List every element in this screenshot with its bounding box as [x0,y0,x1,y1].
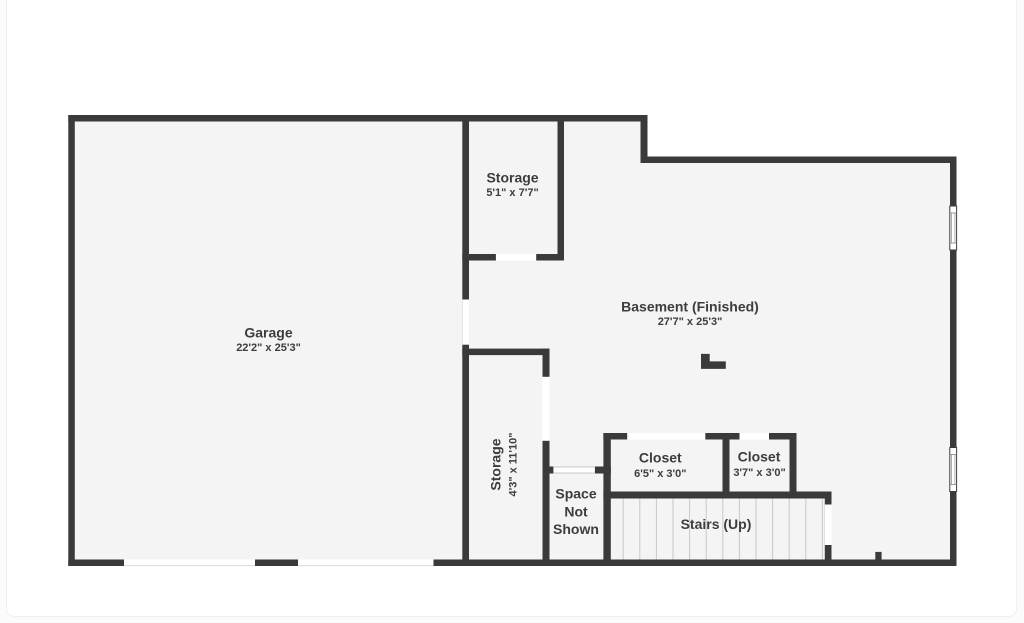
svg-text:22'2" x 25'3": 22'2" x 25'3" [236,342,301,354]
svg-text:Stairs (Up): Stairs (Up) [681,516,752,532]
svg-text:5'1" x 7'7": 5'1" x 7'7" [486,187,538,199]
svg-text:Storage: Storage [486,170,538,186]
svg-text:Not: Not [564,503,588,519]
svg-text:Closet: Closet [738,449,781,465]
svg-text:Space: Space [555,486,596,502]
svg-text:Garage: Garage [244,325,292,341]
svg-text:Storage: Storage [488,438,504,490]
svg-text:6'5" x 3'0": 6'5" x 3'0" [634,468,686,480]
svg-text:Shown: Shown [553,521,599,537]
svg-text:27'7" x 25'3": 27'7" x 25'3" [658,316,723,328]
svg-text:4'3" x 11'10": 4'3" x 11'10" [507,433,519,497]
svg-text:Closet: Closet [639,450,682,466]
svg-text:Basement (Finished): Basement (Finished) [621,299,759,315]
svg-text:3'7" x 3'0": 3'7" x 3'0" [733,467,785,479]
